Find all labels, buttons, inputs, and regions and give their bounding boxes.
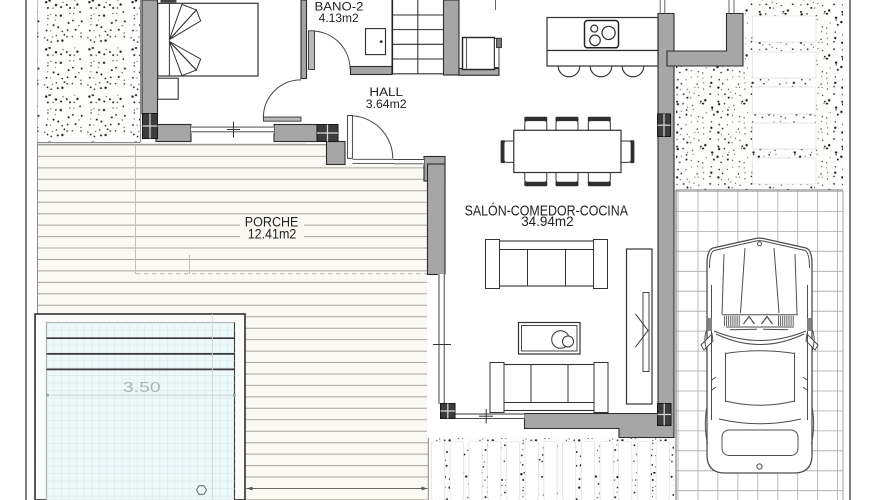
svg-text:12.41m2: 12.41m2 — [248, 226, 297, 242]
svg-text:4.13m2: 4.13m2 — [319, 11, 359, 25]
svg-text:3.64m2: 3.64m2 — [366, 97, 407, 111]
svg-text:34.94m2: 34.94m2 — [521, 213, 574, 229]
svg-text:3.50: 3.50 — [123, 380, 161, 396]
